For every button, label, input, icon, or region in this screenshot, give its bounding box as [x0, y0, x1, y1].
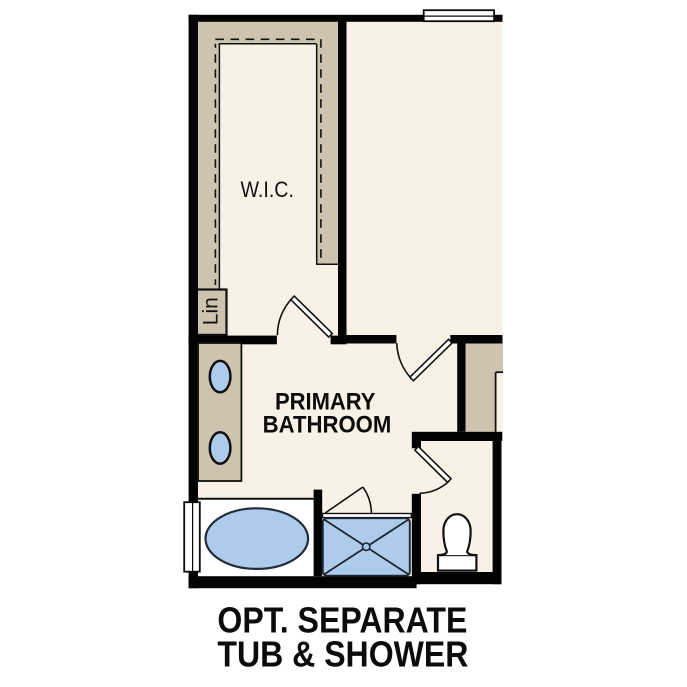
svg-text:Lin: Lin	[199, 297, 222, 325]
svg-text:TUB & SHOWER: TUB & SHOWER	[217, 633, 468, 674]
svg-text:BATHROOM: BATHROOM	[263, 412, 392, 439]
svg-text:W.I.C.: W.I.C.	[240, 177, 294, 202]
